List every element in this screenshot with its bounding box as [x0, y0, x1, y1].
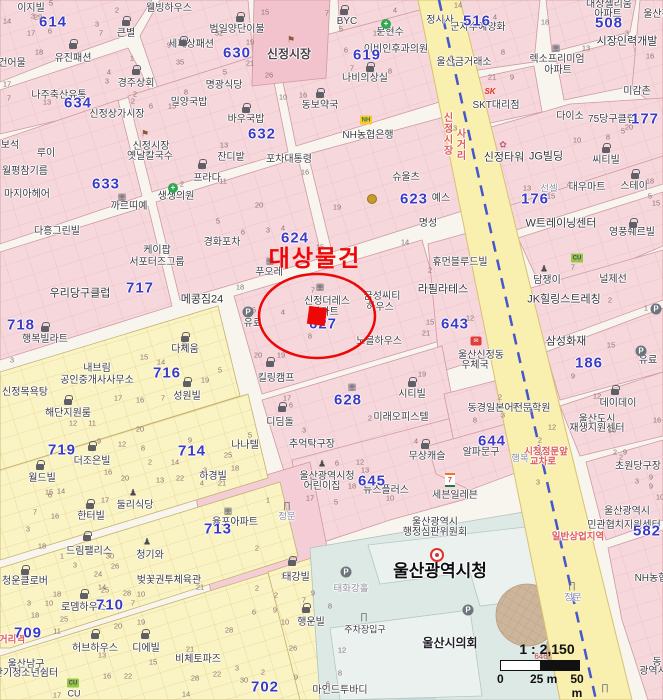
map-label: 14 — [3, 17, 11, 25]
map-label: 1 — [434, 258, 438, 266]
map-label: 3 — [501, 411, 505, 419]
map-label: 12 — [466, 314, 474, 322]
parking-icon: P — [463, 605, 474, 616]
map-label: 5 — [218, 366, 222, 374]
map-label: 6 — [149, 102, 153, 110]
scale-ratio: 1 : 2,150 — [497, 641, 597, 657]
map-label: 710 — [96, 598, 124, 613]
shop-icon — [132, 69, 140, 75]
map-label: SKT대리점 — [472, 101, 519, 111]
scale-tick-50: 50 m — [565, 672, 589, 700]
map-label: 2 — [619, 453, 623, 461]
building-icon: ▦ — [348, 383, 357, 392]
map-label: 17 — [373, 29, 381, 37]
map-label: 8 — [501, 48, 505, 56]
map-label: 렉소프리미엄 — [529, 55, 584, 65]
credit-union-icon — [367, 194, 377, 204]
map-label: 태강빌 — [282, 573, 310, 583]
map-label: 16 — [103, 672, 111, 680]
shop-icon — [266, 361, 274, 367]
map-label: 3 — [635, 477, 639, 485]
map-label: 케이팝 — [143, 246, 171, 256]
map-label: 19 — [137, 618, 145, 626]
shop-icon — [278, 406, 286, 412]
shop-icon — [316, 92, 324, 98]
scale-bar: 1 : 2,150 0 25 m 50 m — [497, 641, 597, 685]
map-label: 516 — [463, 14, 491, 29]
map-label: 프라다 — [193, 174, 221, 184]
map-label: 4 — [200, 479, 204, 487]
map-label: 4 — [567, 180, 571, 188]
parking-icon: P — [243, 307, 254, 318]
map-label: 추억탁구장 — [289, 440, 335, 450]
map-label: 시티빌 — [398, 390, 426, 400]
map-label: 청기와 — [136, 551, 164, 561]
map-label: 유진패션 — [55, 54, 92, 64]
map-label: 644 — [478, 434, 506, 449]
shop-icon — [181, 336, 189, 342]
map-label: 명광식당 — [206, 81, 243, 91]
shop-icon — [236, 16, 244, 22]
person-icon: ♟ — [129, 489, 137, 498]
shop-icon — [122, 20, 130, 26]
map-label: 16 — [301, 168, 309, 176]
shop-icon — [198, 163, 206, 169]
map-label: 8 — [328, 602, 332, 610]
map-label: 716 — [153, 366, 181, 381]
map-label: 단기청소년쉼터 — [0, 669, 58, 679]
map-label: 9 — [294, 673, 298, 681]
map-label: 1 — [130, 54, 134, 62]
shop-icon — [421, 443, 429, 449]
map-label: 동보약국 — [302, 101, 339, 111]
map-label: 1 — [266, 496, 270, 504]
map-label: 건어물 — [0, 59, 26, 69]
map-label: 14 — [157, 358, 165, 366]
map-label: 널제선 — [599, 275, 627, 285]
gate-icon: ∏ — [283, 502, 290, 511]
shop-icon — [41, 326, 49, 332]
map-label: 6 — [344, 46, 348, 54]
map-label: 623 — [400, 192, 428, 207]
map-label: 6 — [326, 680, 330, 688]
map-label: 한터빌 — [77, 512, 105, 522]
map-label: 18 — [53, 590, 61, 598]
map-label: 2 — [368, 414, 372, 422]
flower-icon: ✿ — [499, 141, 507, 150]
map-label: 718 — [7, 318, 35, 333]
map-label: 신정더레스 — [304, 297, 350, 307]
map-label: 3 — [203, 466, 207, 474]
scale-rule-dark-half — [540, 661, 579, 670]
map-label: 7 — [311, 286, 315, 294]
map-label: 22 — [176, 474, 184, 482]
map-label: 세계상패션 — [168, 40, 214, 50]
map-label: 2 — [538, 436, 542, 444]
map-label: 21 — [422, 329, 430, 337]
map-label: 신정타워 — [484, 153, 524, 164]
map-label: 신정시장 — [441, 112, 451, 156]
map-label: 13 — [220, 141, 228, 149]
shop-icon — [288, 560, 296, 566]
map-label: 슈울츠 — [392, 173, 420, 183]
map-label: 루이 — [37, 149, 55, 159]
map-label: 7 — [161, 394, 165, 402]
map-label: 17 — [101, 496, 109, 504]
map-label: 26 — [265, 71, 273, 79]
map-label: 19 — [333, 203, 341, 211]
map-label: 18 — [35, 48, 43, 56]
map-label: 5 — [339, 25, 343, 33]
map-label: 10 — [386, 494, 394, 502]
shop-icon — [629, 222, 637, 228]
map-label: 1 — [281, 572, 285, 580]
map-label: 나비의상실 — [342, 74, 388, 84]
map-label: 울산시의회 — [422, 637, 477, 649]
seven-eleven-icon: 7 — [445, 473, 455, 487]
map-label: 714 — [178, 444, 206, 459]
map-label: 2 — [613, 448, 617, 456]
gate-icon: ∏ — [360, 613, 367, 622]
city-hall-marker-icon — [430, 548, 444, 562]
map-label: 광역시 — [639, 667, 663, 677]
map-label: 10 — [279, 93, 287, 101]
map-label: 22 — [124, 672, 132, 680]
map-label: 21 — [488, 73, 496, 81]
map-label: 초원당구장 — [615, 462, 661, 472]
map-label: 씨티빌 — [592, 156, 620, 166]
shop-icon — [340, 9, 348, 15]
map-label: 15 — [426, 318, 434, 326]
map-label: 정문 — [278, 512, 295, 522]
map-label: 5 — [248, 431, 252, 439]
map-label: 서포터즈그룹 — [129, 258, 184, 268]
sk-logo-icon: SK — [484, 88, 495, 96]
map-label: 633 — [92, 177, 120, 192]
shop-icon — [179, 40, 187, 46]
map-label: 13 — [98, 651, 106, 659]
map-label: 30 — [240, 676, 248, 684]
scale-ticks: 0 25 m 50 m — [497, 671, 589, 685]
map-label: 1 — [644, 304, 648, 312]
map-label: 명성 — [419, 219, 437, 229]
map-label: 유료 — [639, 356, 657, 366]
building-icon: ▦ — [552, 44, 561, 53]
map-label: 8 — [141, 444, 145, 452]
market-icon: ⚑ — [141, 130, 149, 139]
shop-icon — [69, 43, 77, 49]
map-label: 176 — [521, 192, 549, 207]
map-label: 15 — [261, 8, 269, 16]
map-label: 20 — [625, 123, 633, 131]
map-label: 17 — [53, 691, 61, 699]
map-label: 주차장입구 — [344, 626, 385, 635]
map-label: 13 — [361, 466, 369, 474]
map-label: 킬링캠프 — [258, 374, 295, 384]
shop-icon — [83, 535, 91, 541]
gate-icon: ∏ — [568, 582, 575, 591]
map-label: 울산금거래소 — [436, 58, 491, 68]
map-label: 9 — [649, 473, 653, 481]
map-label: 12 — [69, 419, 77, 427]
map-label: 9 — [649, 482, 653, 490]
map-label: 25 — [224, 451, 232, 459]
map-label: 우체국 — [461, 361, 489, 371]
map-label: 2 — [255, 544, 259, 552]
map-label: 32 — [215, 29, 223, 37]
shop-icon — [36, 464, 44, 470]
map-label: 13 — [449, 124, 457, 132]
map-label: 5 — [334, 498, 338, 506]
map-label: 15 — [140, 353, 148, 361]
map-label: 14 — [171, 458, 179, 466]
map-label: 28 — [225, 626, 233, 634]
map-label: 709 — [14, 626, 42, 641]
map-label: 노블하우스 — [356, 337, 402, 347]
map-label: 18 — [646, 177, 654, 185]
map-label: 아파트 — [544, 66, 572, 76]
map-label: 15 — [607, 341, 615, 349]
map-label: 다이소 — [556, 112, 584, 122]
map-label: 메콩짐24 — [181, 295, 224, 306]
shop-icon — [64, 399, 72, 405]
shop-icon — [408, 381, 416, 387]
map-label: 7 — [131, 599, 135, 607]
nh-bank-icon: NH — [360, 116, 372, 125]
map-label: 4 — [393, 6, 397, 14]
map-label: 신정시장 — [267, 48, 311, 60]
map-label: 4 — [281, 308, 285, 316]
map-label: 177 — [631, 112, 659, 127]
scale-tick-25: 25 m — [530, 672, 557, 686]
map-label: 9 — [273, 606, 277, 614]
map-label: 큰별 — [117, 29, 135, 39]
map-label: 동경일본어전문학원 — [468, 404, 551, 414]
map-canvas[interactable]: 이지빌웰빙하우스큰별유진패션세계상패션건어물경주상회나주축산유통밀양국밥명광식당… — [0, 0, 663, 700]
map-label: 3 — [625, 29, 629, 37]
cu-store-icon: CU — [67, 679, 79, 688]
shop-icon — [602, 147, 610, 153]
shop-icon — [141, 633, 149, 639]
map-label: 702 — [251, 680, 279, 695]
map-label: 15 — [547, 192, 555, 200]
map-label: 영풍쉐르빌 — [609, 228, 655, 238]
map-label: 16 — [653, 416, 661, 424]
shop-icon — [631, 173, 639, 179]
map-label: 11 — [53, 627, 61, 635]
building-icon: ▦ — [266, 257, 275, 266]
map-label: 3 — [235, 664, 239, 672]
map-label: 9 — [167, 41, 171, 49]
map-label: 2 — [498, 393, 502, 401]
map-label: 15 — [149, 658, 157, 666]
map-label: 9 — [311, 589, 315, 597]
map-label: 7 — [7, 94, 11, 102]
map-label: 2 — [115, 6, 119, 14]
map-label: 10 — [281, 618, 289, 626]
map-label: 20 — [254, 351, 262, 359]
map-label: 26 — [289, 644, 297, 652]
map-label: 6 — [335, 459, 339, 467]
map-label: 대우마트 — [569, 183, 606, 193]
map-label: 8 — [606, 133, 610, 141]
map-label: 경주상회 — [118, 79, 155, 89]
map-label: 614 — [39, 15, 67, 30]
map-label: 18 — [231, 464, 239, 472]
map-label: 옛날칼국수 — [127, 152, 173, 162]
clinic-icon: + — [381, 19, 391, 29]
map-label: 16 — [51, 512, 59, 520]
map-label: 713 — [204, 522, 232, 537]
map-label: 행운빌 — [297, 618, 325, 628]
map-label: 18 — [31, 611, 39, 619]
gate-icon: ∏ — [601, 684, 608, 693]
map-label: 25 — [60, 615, 68, 623]
shop-icon — [242, 107, 250, 113]
map-label: 허브하우스 — [72, 644, 118, 654]
map-label: 휴먼블루드빌 — [432, 258, 487, 268]
map-label: 마지아헤어 — [4, 190, 50, 200]
map-label: 3 — [26, 525, 30, 533]
map-label: 17 — [306, 494, 314, 502]
map-label: 26 — [111, 562, 119, 570]
map-label: 20 — [255, 201, 263, 209]
map-label: 8 — [308, 332, 312, 340]
map-label: 9 — [623, 448, 627, 456]
map-label: 18 — [236, 283, 244, 291]
map-label: 16 — [299, 91, 307, 99]
map-label: 9 — [97, 437, 101, 445]
shop-icon — [88, 445, 96, 451]
map-label: 16 — [136, 396, 144, 404]
map-label: 508 — [595, 16, 623, 31]
parking-icon: P — [651, 304, 662, 315]
map-label: W트레이닝센터 — [525, 219, 596, 230]
map-label: 24 — [94, 570, 102, 578]
map-label: 8 — [338, 669, 342, 677]
map-label: 8 — [184, 88, 188, 96]
map-label: 21 — [246, 59, 254, 67]
map-label: 미래오피스텔 — [373, 413, 428, 423]
map-label: 4 — [107, 68, 111, 76]
map-label: 16 — [608, 426, 616, 434]
map-label: 푸오레 — [255, 268, 283, 278]
map-label: 비체토파즈 — [175, 655, 221, 665]
map-label: 717 — [126, 281, 154, 296]
map-label: 4 — [414, 437, 418, 445]
parking-icon: P — [341, 567, 352, 578]
map-label: 하우스 — [366, 303, 394, 313]
map-label: 7 — [571, 263, 575, 271]
map-label: 신정목욕탕 — [2, 388, 48, 398]
map-label: 19 — [418, 370, 426, 378]
person-icon: ♟ — [318, 460, 326, 469]
map-label: 알파문구 — [463, 448, 500, 458]
map-label: 2 — [131, 97, 135, 105]
parking-icon: P — [636, 346, 647, 357]
map-label: 5 — [513, 402, 517, 410]
map-label: 10 — [45, 599, 53, 607]
scale-rule — [500, 660, 580, 671]
map-label: 성원빌 — [173, 392, 201, 402]
map-label: 15 — [45, 488, 53, 496]
map-label: 9 — [510, 73, 514, 81]
building-icon: ▦ — [118, 193, 127, 202]
map-label: 담쟁이 — [533, 276, 561, 286]
map-label: 20 — [114, 622, 122, 630]
map-label: 719 — [48, 443, 76, 458]
map-label: 2 — [274, 591, 278, 599]
map-label: 20 — [121, 474, 129, 482]
map-label: 3 — [27, 599, 31, 607]
map-label: JK힐링스트레칭 — [527, 295, 601, 306]
map-label: 2 — [261, 668, 265, 676]
map-label: 12 — [548, 423, 556, 431]
map-label: 시장인력개발 — [597, 37, 658, 48]
shop-icon — [86, 503, 94, 509]
map-label: 6 — [289, 401, 293, 409]
map-label: 포차대통령 — [266, 155, 312, 165]
map-label: 22 — [213, 670, 221, 678]
map-label: 17 — [3, 80, 11, 88]
map-label: 19 — [201, 376, 209, 384]
map-label: 7 — [350, 64, 354, 72]
map-label: 디딤돌 — [266, 418, 294, 428]
map-label: 잔디밭 — [217, 153, 245, 163]
map-label: 624 — [281, 231, 309, 246]
map-label: 21 — [196, 583, 204, 591]
map-label: JG빌딩 — [529, 152, 563, 163]
map-label: 9 — [188, 436, 192, 444]
map-label: 15 — [168, 102, 176, 110]
map-label: 금성씨티 — [364, 292, 401, 302]
map-label: 12 — [338, 646, 346, 654]
map-label: 5 — [223, 68, 227, 76]
map-label: 스테이 — [620, 182, 648, 192]
post-office-icon: ✉ — [471, 337, 482, 346]
map-label: 데이데이 — [600, 399, 637, 409]
map-label: 울산장 — [643, 10, 663, 20]
map-label: 17 — [114, 394, 122, 402]
shop-icon — [183, 381, 191, 387]
map-label: 까르띠예 — [111, 202, 148, 212]
shop-icon — [91, 633, 99, 639]
map-label: 무상캐슬 — [409, 452, 446, 462]
map-label: 15 — [316, 243, 324, 251]
map-label: 3 — [95, 20, 99, 28]
map-label: 교차로 — [530, 457, 556, 467]
map-label: 20 — [136, 425, 144, 433]
map-label: 벚꽃권투체육관 — [137, 576, 201, 586]
map-label: 내브림 — [83, 364, 111, 374]
map-label: CU — [68, 690, 81, 699]
map-label: 예스 — [432, 194, 450, 204]
map-label: 19 — [277, 351, 285, 359]
map-label: 2 — [428, 266, 432, 274]
map-label: 5 — [648, 192, 652, 200]
map-label: 2 — [255, 584, 259, 592]
map-label: 7 — [99, 29, 103, 37]
map-label: 재생지원센터 — [569, 424, 624, 434]
map-label: 6 — [241, 228, 245, 236]
map-label: 생생의원 — [158, 192, 195, 202]
map-label: 다흥그린빌 — [34, 227, 80, 237]
map-label: 3 — [266, 226, 270, 234]
map-label: 5 — [49, 0, 53, 7]
map-label: 행정심판위원회 — [403, 528, 467, 538]
map-label: 643 — [441, 317, 469, 332]
map-label: 울산광역시청 — [393, 563, 487, 580]
